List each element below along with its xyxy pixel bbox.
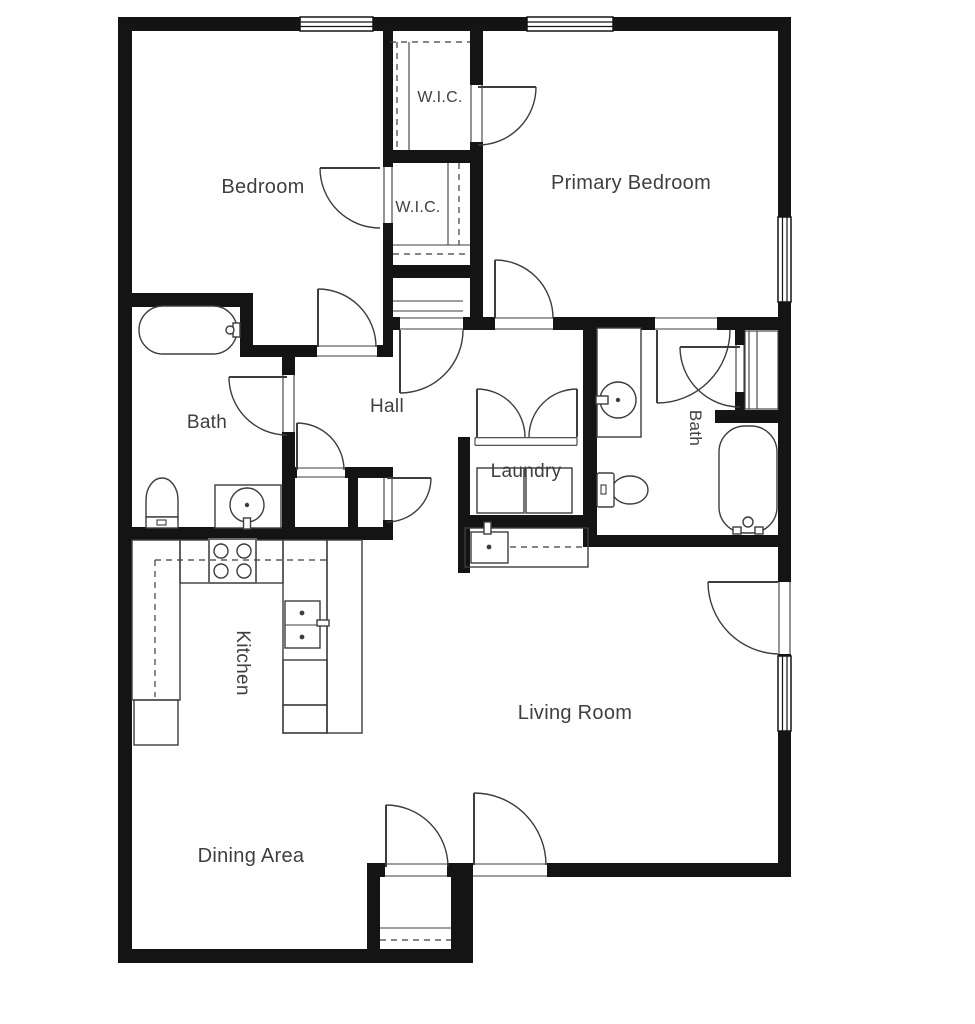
room-label-bath-2: Bath [686, 410, 705, 446]
room-label-wic-2: W.I.C. [395, 199, 440, 216]
opening-wic2-door [383, 167, 393, 223]
stove [209, 539, 256, 583]
door-bath2 [657, 330, 730, 403]
toilet-1 [146, 478, 178, 528]
counter-right-outer [327, 540, 362, 733]
room-label-dining-area: Dining Area [198, 845, 305, 867]
opening-bath2-door [655, 317, 717, 330]
refrigerator [134, 700, 178, 745]
opening-hall-closet-door [400, 317, 463, 330]
opening-entry-door [778, 582, 791, 654]
door-hall-closet [400, 330, 463, 393]
vanity-sink-1 [215, 485, 281, 529]
room-label-bath-1: Bath [187, 412, 227, 433]
floor-plan-page: BedroomW.I.C.W.I.C.Primary BedroomBathHa… [0, 0, 975, 1024]
door-primary-bedroom [495, 260, 553, 318]
room-label-living-room: Living Room [518, 702, 632, 724]
door-laundry-left [477, 389, 525, 437]
window-living-right [778, 656, 791, 731]
opening-wic1-door [470, 85, 483, 142]
coat-closet-shelving [380, 877, 451, 949]
windows [300, 17, 791, 731]
window-bedroom-top [300, 17, 373, 31]
room-label-wic-1: W.I.C. [417, 89, 462, 106]
bathtub-2 [719, 426, 777, 534]
window-primary-right [778, 217, 791, 302]
door-coat-closet [386, 805, 448, 867]
bar-counter [465, 522, 588, 567]
door-entry [708, 582, 778, 654]
door-closet2 [387, 478, 431, 522]
door-laundry-right [529, 389, 577, 437]
floor-plan-drawing: BedroomW.I.C.W.I.C.Primary BedroomBathHa… [0, 0, 975, 1024]
room-label-primary-bedroom: Primary Bedroom [551, 172, 711, 194]
opening-bedroom-door [317, 345, 377, 357]
opening-back-door [473, 863, 547, 877]
room-label-hall: Hall [370, 396, 404, 417]
linen-closet-shelving [745, 331, 778, 409]
door-bedroom [318, 289, 376, 347]
opening-bath1-door [282, 375, 295, 432]
opening-laundry-doors [475, 437, 577, 446]
door-linen-closet [680, 347, 740, 407]
counter-left [132, 540, 180, 700]
opening-closet1-door [297, 467, 345, 478]
vanity-sink-2 [596, 328, 641, 437]
door-wic2 [320, 168, 380, 228]
opening-coat-closet-door [385, 863, 447, 877]
opening-closet2-door [383, 478, 393, 520]
door-closet1 [297, 423, 344, 470]
room-label-kitchen: Kitchen [232, 630, 253, 695]
window-primary-top [527, 17, 613, 31]
hall-closet-north [393, 278, 470, 317]
opening-primary-door [495, 317, 553, 330]
dishwasher [283, 660, 327, 705]
room-label-bedroom: Bedroom [221, 176, 304, 198]
kitchen-sink [285, 601, 329, 648]
base-cabinet [283, 705, 327, 733]
bathtub-1 [139, 306, 240, 354]
door-wic1 [478, 87, 536, 145]
toilet-2 [597, 473, 648, 507]
door-bath1 [229, 377, 287, 435]
door-back [474, 793, 546, 865]
opening-linen-door [735, 345, 745, 392]
room-label-laundry: Laundry [491, 461, 562, 482]
